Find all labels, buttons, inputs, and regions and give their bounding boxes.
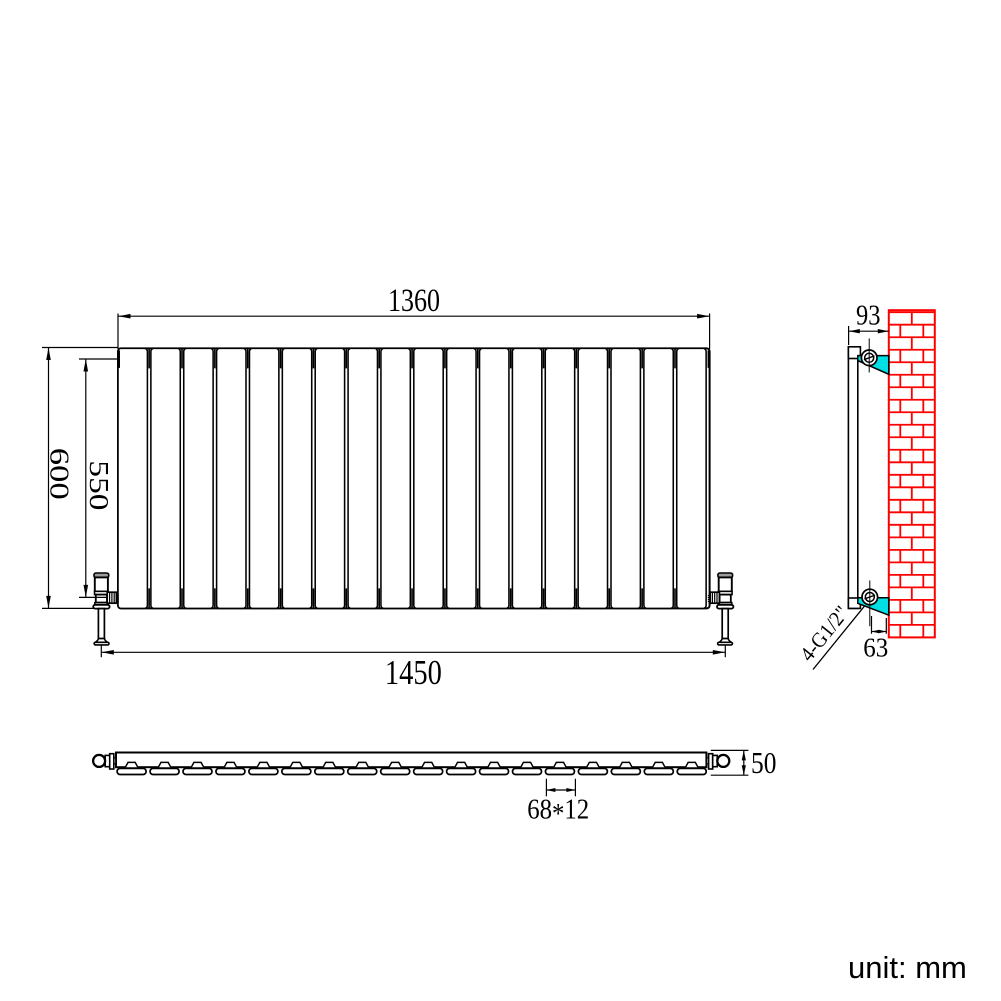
svg-text:50: 50 (751, 745, 776, 780)
svg-text:1450: 1450 (385, 653, 442, 692)
svg-text:68*12: 68*12 (527, 795, 589, 831)
svg-text:600: 600 (44, 448, 74, 500)
svg-text:63: 63 (863, 633, 888, 663)
svg-text:93: 93 (856, 301, 881, 332)
svg-text:unit: mm: unit: mm (848, 950, 967, 985)
svg-text:1360: 1360 (388, 283, 440, 319)
svg-text:550: 550 (84, 460, 114, 510)
